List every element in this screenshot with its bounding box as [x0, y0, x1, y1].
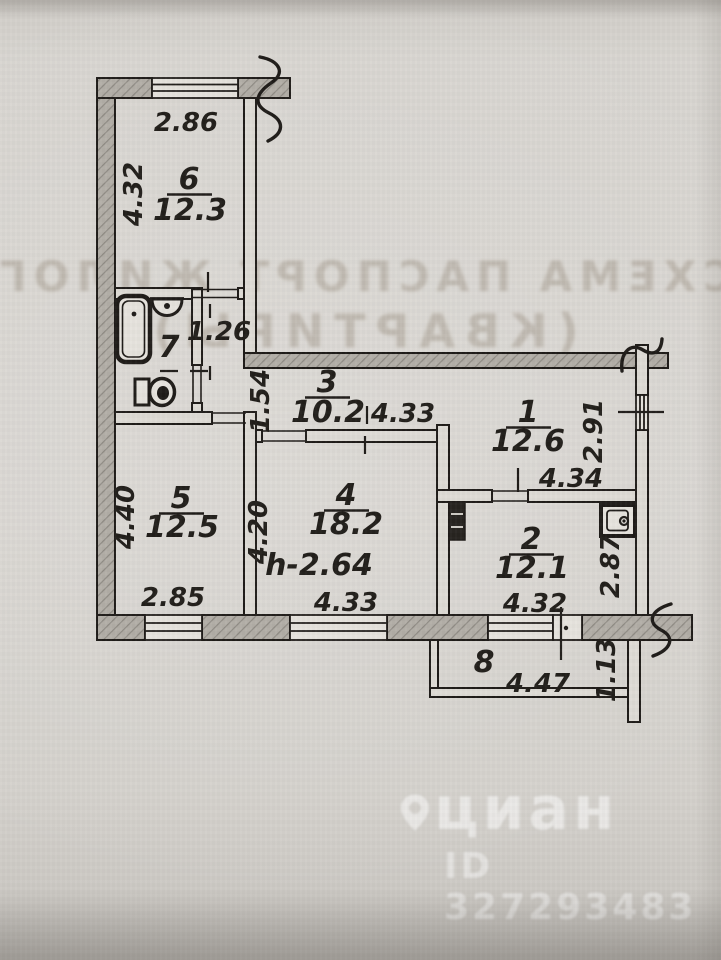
room-1-dim-bottom: 4.34 — [538, 464, 603, 494]
floorplan-page: СХЕМА ПАСПОРТ ЖИЛОГО ПОМЕЩЕНИЯ (КВАРТИРЫ… — [0, 0, 721, 960]
room-3-area: 10.2 — [291, 395, 365, 430]
room-7-number: 7 — [159, 330, 180, 365]
room-1-dim-right: 2.91 — [579, 399, 609, 463]
room-4-labels: 4 18.2 h-2.64 4.20 4.33 — [244, 478, 383, 618]
room-6-dim-left: 4.32 — [119, 162, 149, 227]
room-6-labels: 2.86 4.32 6 12.3 — [119, 108, 227, 228]
room-5-labels: 5 12.5 4.40 2.85 — [111, 481, 219, 613]
room-2-dim-bottom: 4.32 — [502, 589, 567, 619]
room-7-dim-right: 1.26 — [187, 317, 251, 347]
room-8-dim-bottom: 4.47 — [505, 669, 571, 699]
room-3-dim-bottom: 4.33 — [370, 399, 435, 429]
room-8-dim-right: 1.13 — [592, 638, 622, 702]
floorplan-drawing: 2.86 4.32 6 12.3 7 1.26 3 10.2 1.54 4.33 — [0, 0, 721, 960]
room-3-labels: 3 10.2 1.54 4.33 — [246, 365, 435, 433]
room-4-dim-left: 4.20 — [244, 500, 274, 565]
washbasin-icon — [150, 298, 184, 316]
room-1-labels: 1 12.6 4.34 2.91 — [491, 395, 609, 494]
room-2-area: 12.1 — [495, 551, 569, 586]
room-4-ceiling-height: h-2.64 — [265, 548, 373, 583]
room-8-number: 8 — [474, 645, 495, 680]
window-room4 — [290, 615, 387, 640]
kitchen-sink-icon — [601, 505, 635, 536]
room-4-dim-bottom: 4.33 — [313, 588, 378, 618]
toilet-icon — [135, 379, 175, 406]
room-2-labels: 2 12.1 4.32 2.87 — [495, 522, 626, 619]
window-room5 — [145, 615, 202, 640]
room-6-number: 6 — [179, 162, 200, 197]
room-1-area: 12.6 — [491, 424, 565, 459]
room-2-dim-right: 2.87 — [596, 533, 626, 598]
room-7-labels: 7 1.26 — [159, 317, 252, 365]
window-room6 — [152, 78, 238, 98]
room-6-area: 12.3 — [153, 193, 227, 228]
room-3-dim-left: 1.54 — [246, 369, 276, 433]
room-5-dim-left: 4.40 — [111, 485, 141, 550]
room-4-area: 18.2 — [309, 507, 383, 542]
bathtub-icon — [117, 296, 150, 362]
room-5-dim-bottom: 2.85 — [141, 583, 205, 613]
room-5-area: 12.5 — [145, 510, 219, 545]
room-6-dim-top: 2.86 — [154, 108, 218, 138]
vent-shaft — [449, 502, 465, 540]
